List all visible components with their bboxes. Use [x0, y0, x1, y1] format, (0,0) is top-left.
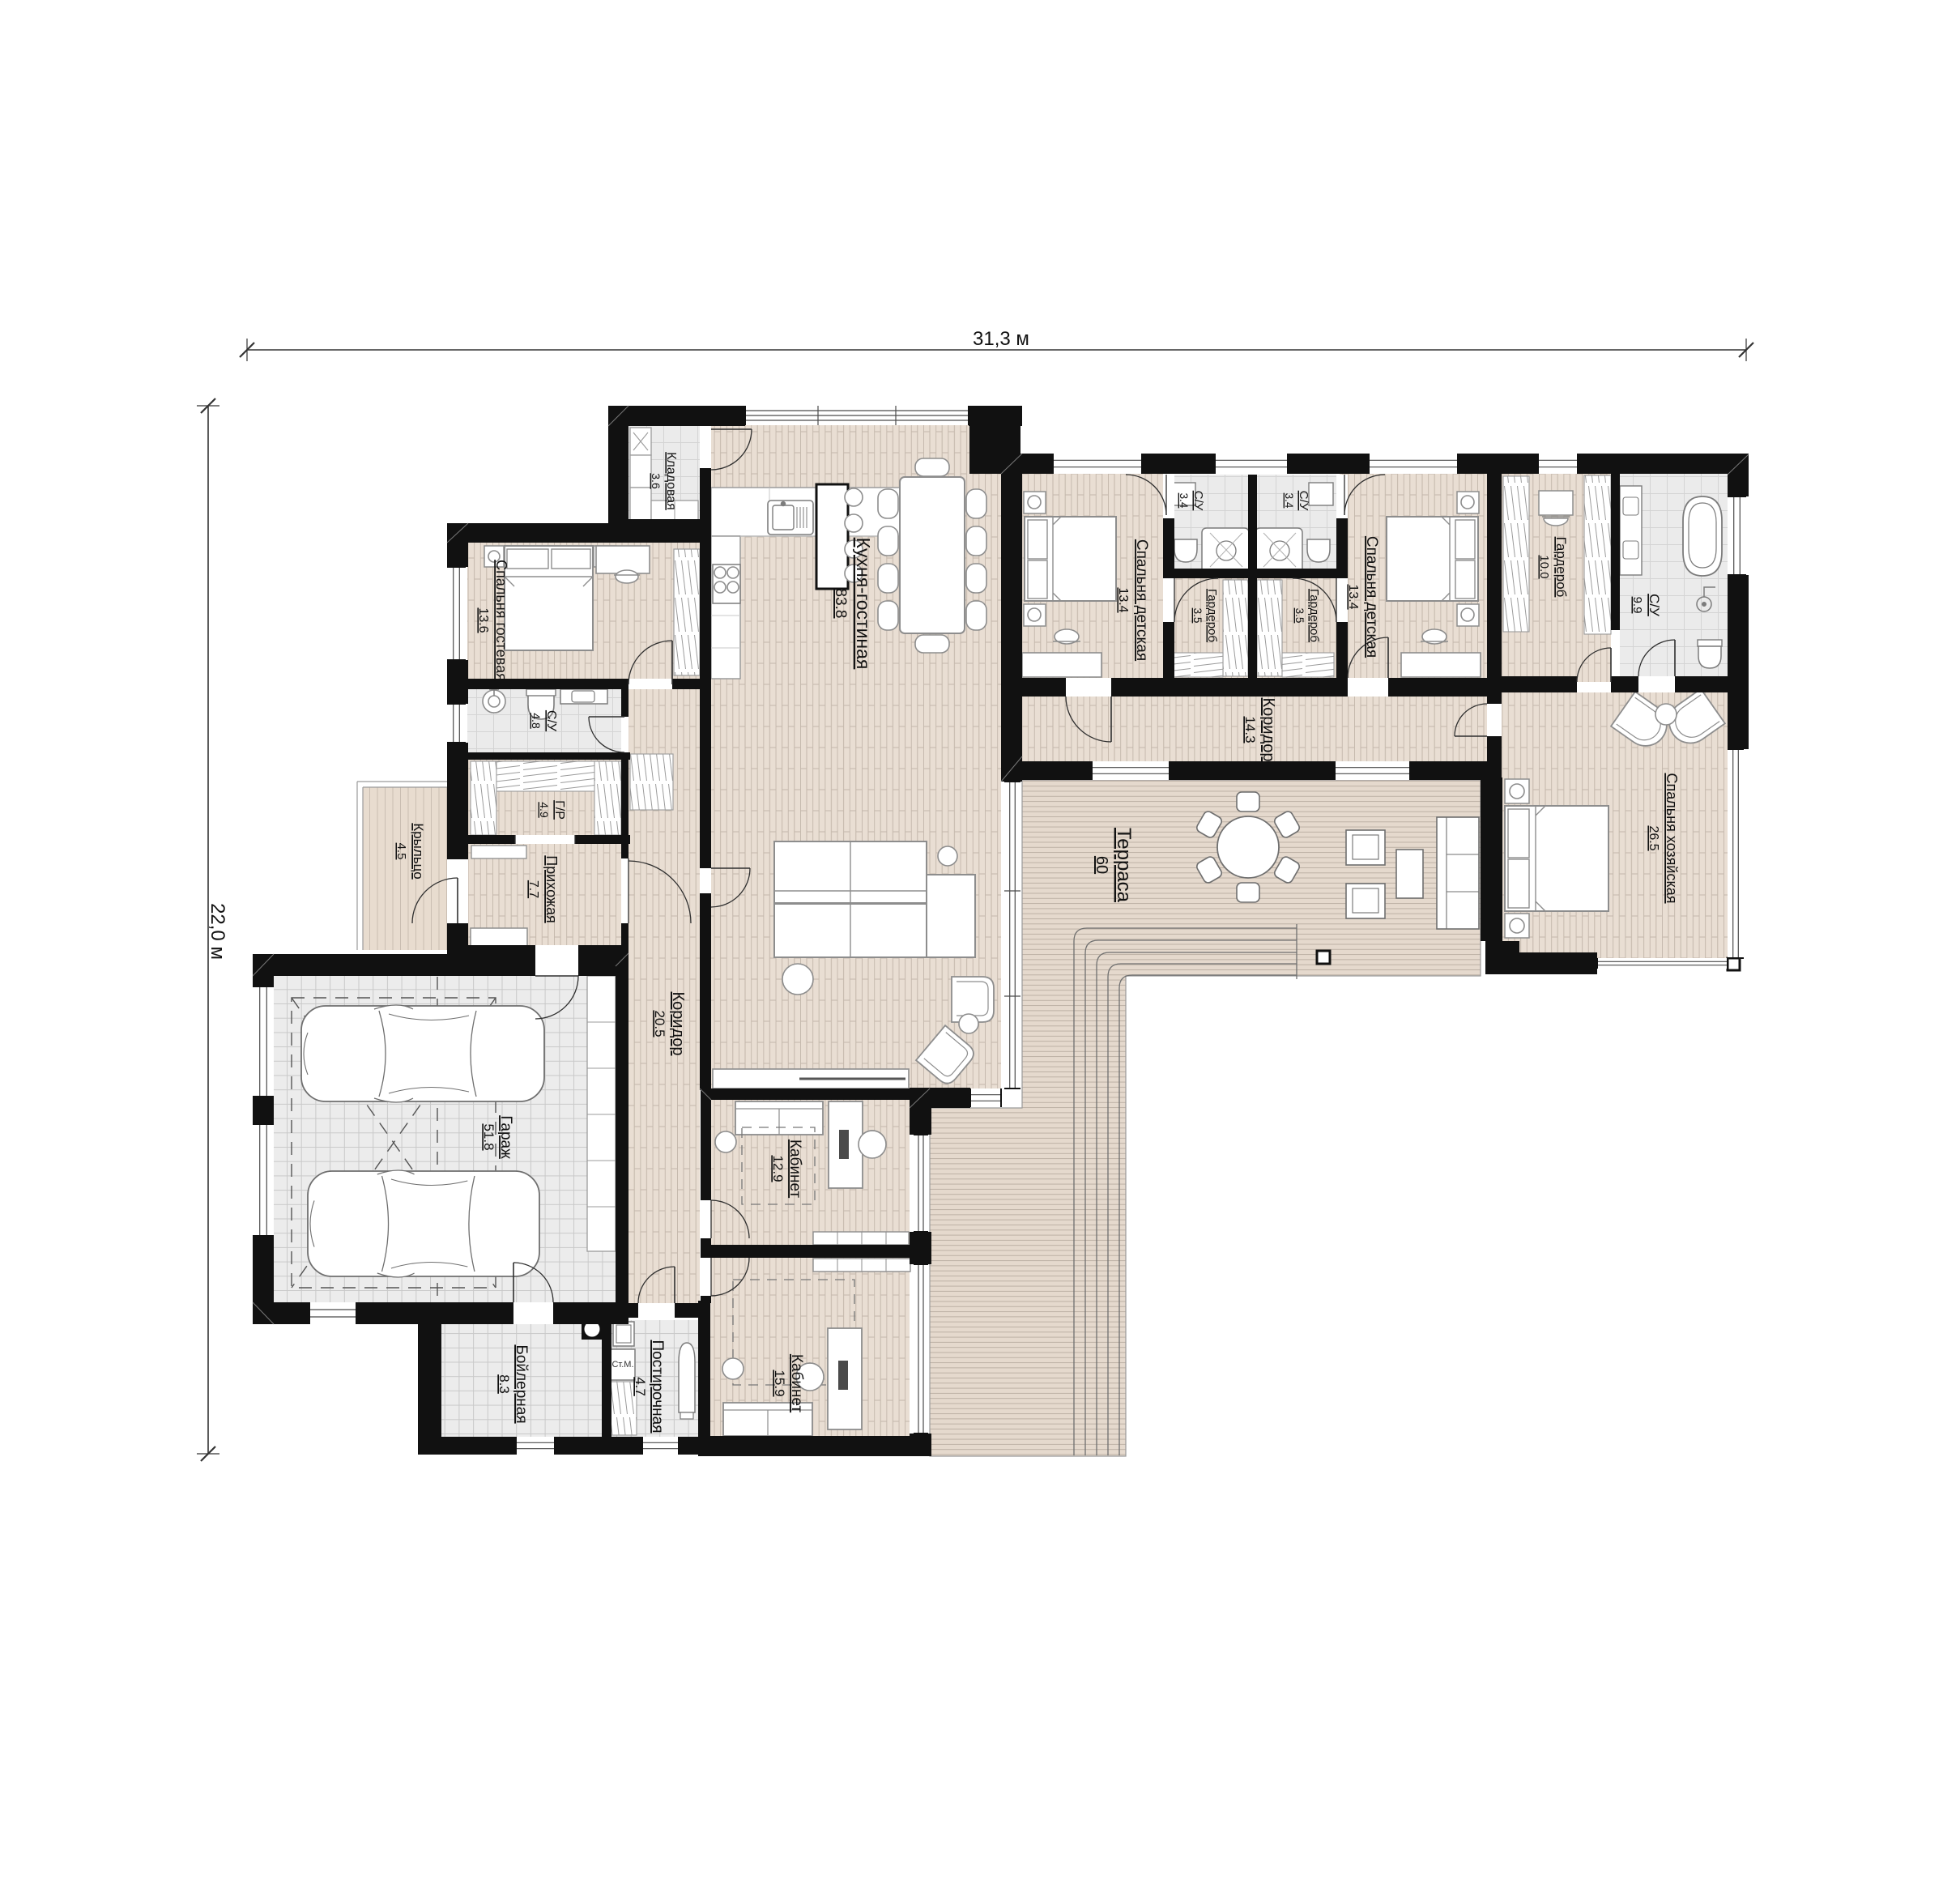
svg-text:С/У: С/У [1191, 491, 1205, 511]
svg-text:51.8: 51.8 [481, 1123, 496, 1150]
svg-text:Коридор: Коридор [1259, 698, 1277, 762]
svg-text:13.6: 13.6 [476, 607, 490, 633]
svg-text:4.9: 4.9 [538, 802, 551, 818]
svg-text:15.9: 15.9 [772, 1370, 787, 1396]
svg-text:10.0: 10.0 [1537, 555, 1551, 578]
svg-text:8.3: 8.3 [496, 1374, 512, 1394]
svg-text:4.5: 4.5 [394, 843, 408, 860]
svg-text:Кабинет: Кабинет [788, 1354, 805, 1413]
svg-text:Терраса: Терраса [1113, 828, 1135, 903]
svg-text:83.8: 83.8 [832, 589, 849, 619]
svg-text:3.5: 3.5 [1293, 608, 1306, 624]
svg-text:Коридор: Коридор [669, 992, 687, 1056]
svg-text:4.8: 4.8 [530, 713, 543, 729]
svg-text:Гардероб: Гардероб [1307, 589, 1321, 642]
svg-text:Кабинет: Кабинет [786, 1140, 803, 1199]
svg-text:22,0 м: 22,0 м [207, 903, 228, 960]
svg-text:Ст.М.: Ст.М. [611, 1360, 633, 1370]
svg-text:Спальня хозяйская: Спальня хозяйская [1664, 773, 1680, 903]
svg-text:Г/Р: Г/Р [552, 800, 566, 820]
svg-text:Кухня-гостиная: Кухня-гостиная [853, 538, 874, 670]
svg-text:Гараж: Гараж [497, 1115, 514, 1159]
svg-text:7.7: 7.7 [526, 880, 540, 898]
svg-text:60: 60 [1093, 856, 1110, 874]
svg-text:С/У: С/У [1647, 594, 1662, 616]
svg-text:Постирочная: Постирочная [649, 1340, 666, 1433]
svg-text:Спальня детская: Спальня детская [1363, 536, 1380, 658]
svg-text:Крыльцо: Крыльцо [411, 823, 426, 879]
svg-text:Кладовая: Кладовая [664, 452, 678, 510]
svg-text:Гардероб: Гардероб [1553, 537, 1569, 598]
svg-text:3.4: 3.4 [1178, 493, 1190, 509]
svg-text:3.5: 3.5 [1191, 608, 1204, 624]
svg-text:13.4: 13.4 [1116, 587, 1130, 612]
svg-text:Гардероб: Гардероб [1205, 589, 1219, 642]
svg-text:12.9: 12.9 [770, 1155, 786, 1182]
svg-text:Спальня гостевая: Спальня гостевая [493, 560, 509, 681]
svg-text:9.9: 9.9 [1630, 597, 1644, 614]
svg-text:31,3 м: 31,3 м [973, 328, 1029, 350]
svg-text:3.4: 3.4 [1283, 493, 1295, 509]
svg-text:Бойлерная: Бойлерная [513, 1344, 530, 1423]
svg-text:С/У: С/У [544, 710, 558, 732]
svg-text:26.5: 26.5 [1647, 825, 1660, 850]
svg-text:3.6: 3.6 [650, 473, 663, 489]
svg-text:Спальня детская: Спальня детская [1133, 539, 1150, 661]
svg-text:С/У: С/У [1297, 491, 1310, 511]
svg-text:14.3: 14.3 [1242, 716, 1258, 743]
svg-text:20.5: 20.5 [652, 1010, 667, 1037]
svg-text:Прихожая: Прихожая [543, 855, 560, 922]
svg-text:13.4: 13.4 [1346, 584, 1360, 609]
svg-text:4.7: 4.7 [633, 1377, 648, 1396]
